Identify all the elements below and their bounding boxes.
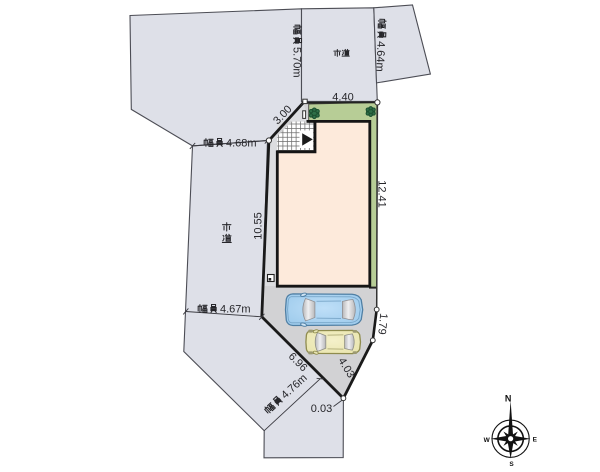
- svg-text:4.67m: 4.67m: [220, 304, 251, 316]
- svg-text:W: W: [484, 437, 491, 444]
- svg-text:1.79: 1.79: [375, 313, 389, 336]
- svg-text:5.70m: 5.70m: [291, 47, 303, 78]
- svg-text:4.40: 4.40: [332, 92, 353, 104]
- svg-text:0.03: 0.03: [311, 403, 332, 415]
- svg-text:4.64m: 4.64m: [373, 41, 386, 72]
- svg-text:10.55: 10.55: [253, 212, 265, 240]
- svg-text:N: N: [505, 394, 512, 404]
- svg-text:12.41: 12.41: [376, 180, 388, 208]
- svg-text:E: E: [533, 436, 538, 443]
- svg-text:S: S: [509, 461, 514, 468]
- svg-text:4.68m: 4.68m: [226, 138, 257, 150]
